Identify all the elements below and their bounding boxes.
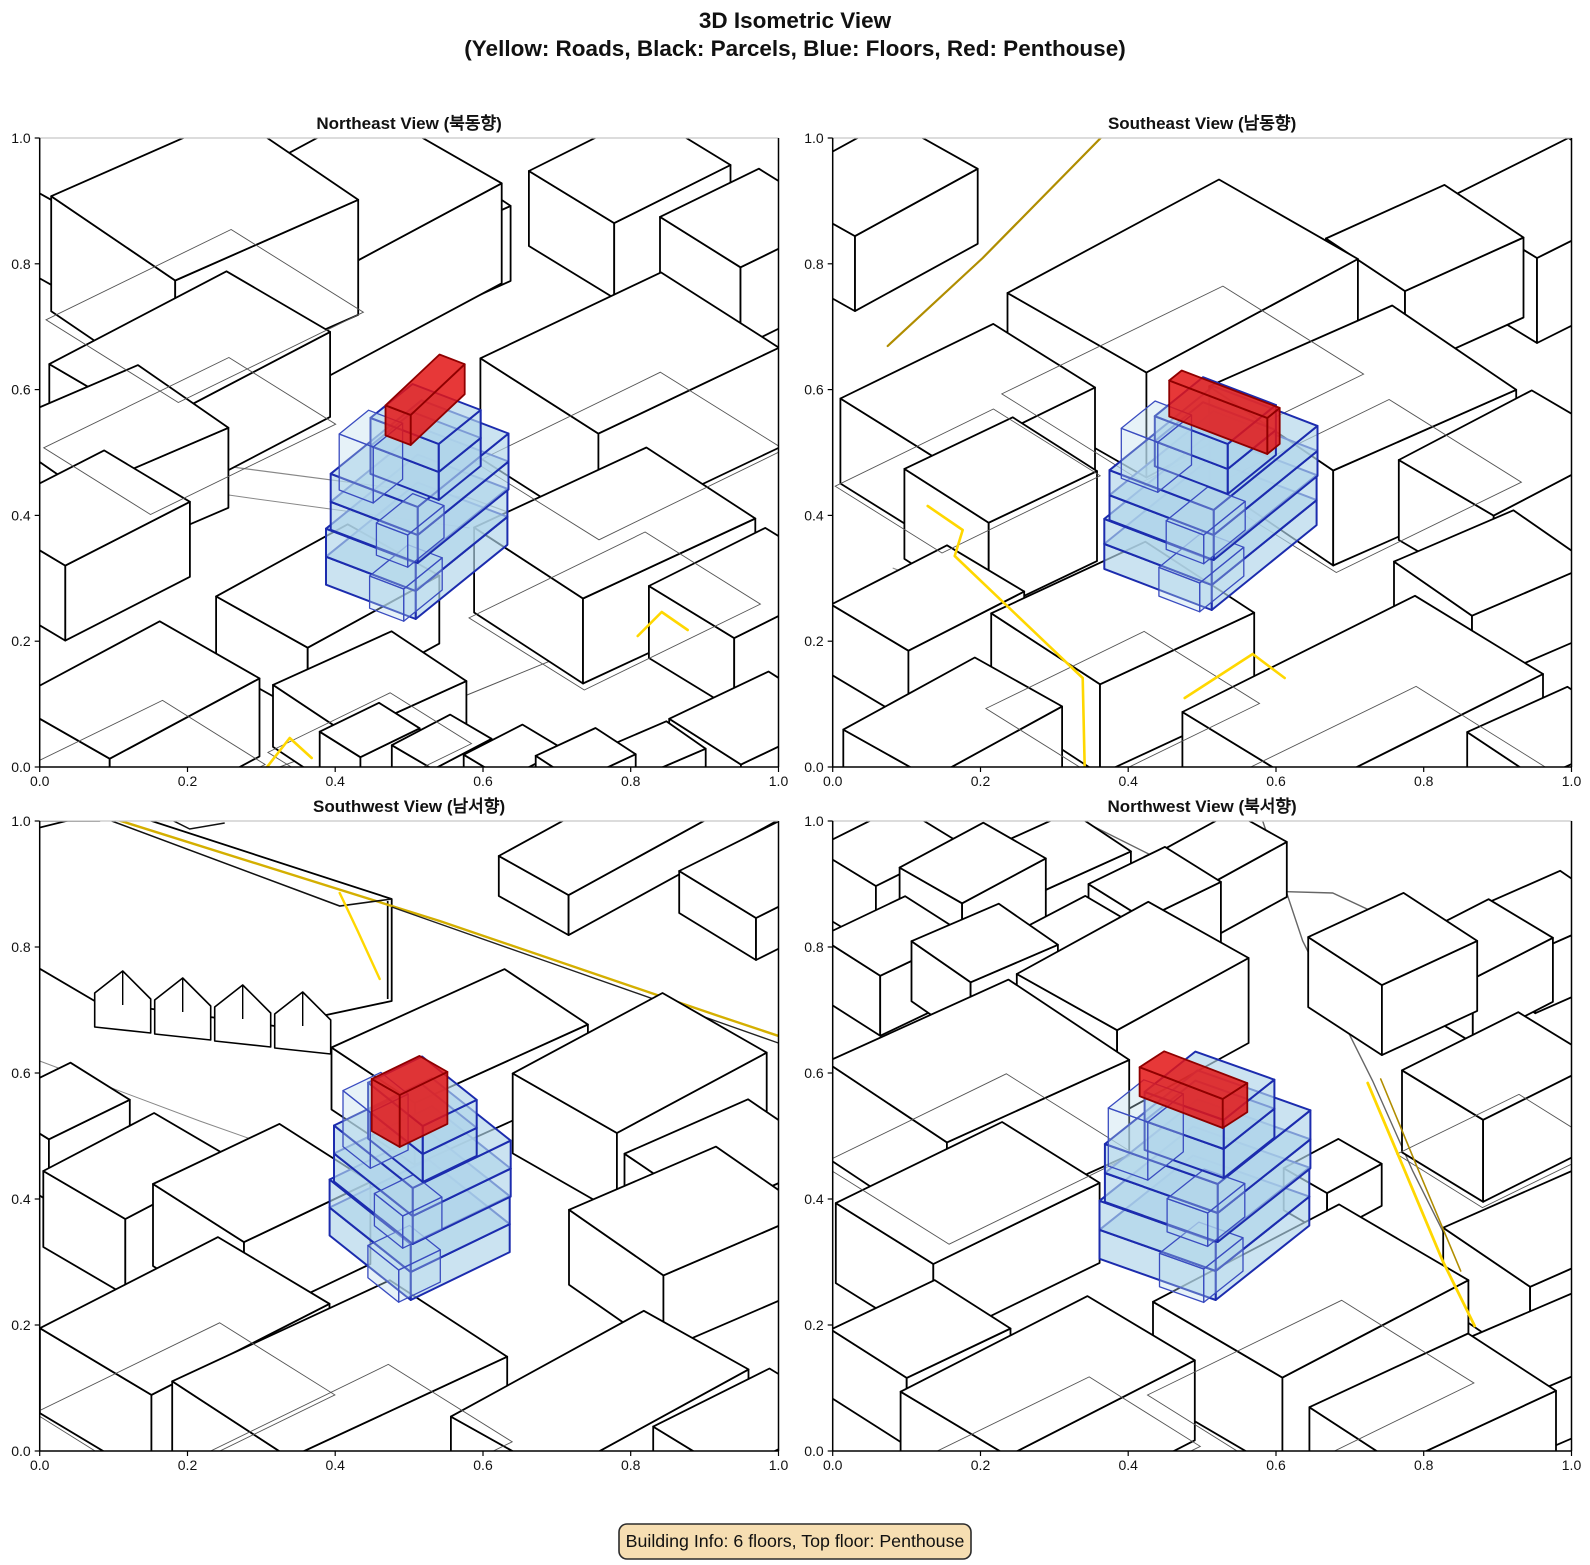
svg-text:0.4: 0.4 <box>1118 773 1138 789</box>
svg-text:0.0: 0.0 <box>823 1457 843 1473</box>
svg-text:Building Info: 6 floors, Top f: Building Info: 6 floors, Top floor: Pent… <box>626 1531 965 1551</box>
svg-text:0.4: 0.4 <box>11 1191 31 1207</box>
svg-text:0.8: 0.8 <box>1414 1457 1434 1473</box>
svg-text:0.6: 0.6 <box>473 1457 493 1473</box>
svg-text:1.0: 1.0 <box>804 813 824 829</box>
svg-text:0.4: 0.4 <box>325 773 345 789</box>
svg-text:Northeast View (북동향): Northeast View (북동향) <box>316 113 501 133</box>
svg-text:0.2: 0.2 <box>11 1317 31 1333</box>
svg-text:0.6: 0.6 <box>1266 1457 1286 1473</box>
svg-text:0.2: 0.2 <box>178 773 198 789</box>
svg-text:0.6: 0.6 <box>1266 773 1286 789</box>
svg-text:0.4: 0.4 <box>11 507 31 523</box>
svg-text:0.2: 0.2 <box>178 1457 198 1473</box>
svg-text:0.6: 0.6 <box>11 382 31 398</box>
svg-text:0.8: 0.8 <box>804 939 824 955</box>
svg-text:0.8: 0.8 <box>621 1457 641 1473</box>
svg-text:0.6: 0.6 <box>804 382 824 398</box>
svg-text:Northwest View (북서향): Northwest View (북서향) <box>1107 796 1296 816</box>
svg-text:1.0: 1.0 <box>769 1457 789 1473</box>
svg-text:0.2: 0.2 <box>804 1317 824 1333</box>
svg-text:0.6: 0.6 <box>473 773 493 789</box>
svg-text:3D Isometric View: 3D Isometric View <box>699 8 892 33</box>
svg-text:0.4: 0.4 <box>1118 1457 1138 1473</box>
svg-text:(Yellow: Roads, Black: Parcels: (Yellow: Roads, Black: Parcels, Blue: Fl… <box>464 36 1125 61</box>
svg-text:1.0: 1.0 <box>11 813 31 829</box>
svg-text:Southeast View (남동향): Southeast View (남동향) <box>1108 113 1296 133</box>
svg-text:0.0: 0.0 <box>804 759 824 775</box>
svg-text:0.8: 0.8 <box>11 939 31 955</box>
svg-text:1.0: 1.0 <box>1562 1457 1582 1473</box>
svg-text:0.0: 0.0 <box>30 1457 50 1473</box>
svg-text:0.0: 0.0 <box>30 773 50 789</box>
svg-text:1.0: 1.0 <box>804 130 824 146</box>
svg-text:1.0: 1.0 <box>769 773 789 789</box>
svg-text:0.6: 0.6 <box>804 1065 824 1081</box>
svg-text:0.2: 0.2 <box>971 1457 991 1473</box>
svg-text:0.0: 0.0 <box>804 1443 824 1459</box>
svg-text:0.8: 0.8 <box>621 773 641 789</box>
svg-text:0.2: 0.2 <box>11 633 31 649</box>
svg-text:0.2: 0.2 <box>971 773 991 789</box>
svg-text:1.0: 1.0 <box>11 130 31 146</box>
svg-text:0.0: 0.0 <box>823 773 843 789</box>
svg-text:0.4: 0.4 <box>804 1191 824 1207</box>
svg-text:0.8: 0.8 <box>804 256 824 272</box>
svg-text:0.0: 0.0 <box>11 1443 31 1459</box>
svg-text:1.0: 1.0 <box>1562 773 1582 789</box>
svg-text:0.8: 0.8 <box>11 256 31 272</box>
svg-text:0.8: 0.8 <box>1414 773 1434 789</box>
svg-text:0.0: 0.0 <box>11 759 31 775</box>
svg-text:0.2: 0.2 <box>804 633 824 649</box>
svg-text:0.4: 0.4 <box>804 507 824 523</box>
svg-text:0.4: 0.4 <box>325 1457 345 1473</box>
svg-text:0.6: 0.6 <box>11 1065 31 1081</box>
svg-text:Southwest View (남서향): Southwest View (남서향) <box>313 796 505 816</box>
